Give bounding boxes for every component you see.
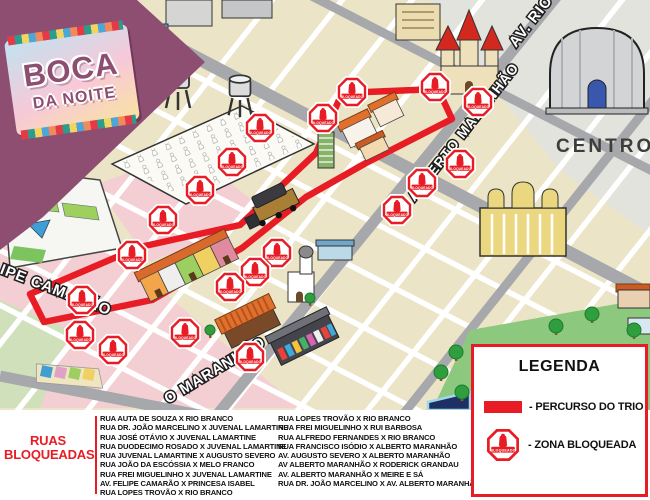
street-item: AV ALBERTO MARANHÃO X RODERICK GRANDAU (278, 460, 480, 469)
svg-text:BLOQUEADO: BLOQUEADO (221, 165, 244, 169)
svg-text:BLOQUEADO: BLOQUEADO (386, 213, 409, 217)
svg-text:BLOQUEADO: BLOQUEADO (102, 353, 125, 357)
svg-text:BLOQUEADO: BLOQUEADO (152, 223, 175, 227)
cathedral (480, 182, 566, 256)
blocked-zone-marker: BLOQUEADO (310, 105, 336, 131)
street-item: RUA JOSÉ OTÁVIO X JUVENAL LAMARTINE (100, 433, 288, 442)
svg-text:BLOQUEADO: BLOQUEADO (71, 303, 94, 307)
svg-text:BLOQUEADO: BLOQUEADO (490, 449, 515, 453)
blocked-zone-marker: BLOQUEADO (150, 207, 176, 233)
svg-text:BLOQUEADO: BLOQUEADO (69, 338, 92, 342)
blocked-zone-marker: BLOQUEADO (67, 322, 93, 348)
blocked-zone-marker: BLOQUEADO (187, 177, 213, 203)
svg-text:BLOQUEADO: BLOQUEADO (449, 167, 472, 171)
blocked-streets-column-1: RUA AUTA DE SOUZA X RIO BRANCO RUA DR. J… (100, 414, 288, 498)
svg-text:BLOQUEADO: BLOQUEADO (219, 290, 242, 294)
svg-text:BLOQUEADO: BLOQUEADO (266, 256, 289, 260)
blocked-zone-marker: BLOQUEADO (422, 74, 448, 100)
svg-text:BLOQUEADO: BLOQUEADO (467, 105, 490, 109)
street-item: AV. FELIPE CAMARÃO X PRINCESA ISABEL (100, 479, 288, 488)
svg-text:BLOQUEADO: BLOQUEADO (312, 121, 335, 125)
svg-text:BLOQUEADO: BLOQUEADO (411, 186, 434, 190)
blocked-zone-marker: BLOQUEADO (217, 274, 243, 300)
svg-text:BLOQUEADO: BLOQUEADO (341, 95, 364, 99)
street-item: RUA FRANCISCO ISÓDIO X ALBERTO MARANHÃO (278, 442, 480, 451)
blocked-zone-marker: BLOQUEADO (219, 149, 245, 175)
tall-green-building (318, 132, 334, 168)
blocked-streets-title: RUAS BLOQUEADAS (4, 434, 92, 462)
svg-text:BLOQUEADO: BLOQUEADO (174, 336, 197, 340)
street-item: RUA LOPES TROVÃO X RIO BRANCO (278, 414, 480, 423)
street-item: RUA ALFREDO FERNANDES X RIO BRANCO (278, 433, 480, 442)
street-item: RUA DR. JOÃO MARCELINO X JUVENAL LAMARTI… (100, 423, 288, 432)
street-item: AV. AUGUSTO SEVERO X ALBERTO MARANHÃO (278, 451, 480, 460)
svg-text:BLOQUEADO: BLOQUEADO (244, 275, 267, 279)
blocked-zone-marker: BLOQUEADO (339, 79, 365, 105)
legend-title: LEGENDA (474, 358, 645, 376)
blocked-zone-marker: BLOQUEADO (447, 151, 473, 177)
district-label-centro: CENTRO (556, 136, 650, 157)
street-item: RUA JUVENAL LAMARTINE X AUGUSTO SEVERO (100, 451, 288, 460)
arena-dome (546, 28, 648, 114)
street-item: RUA JOÃO DA ESCÓSSIA X MELO FRANCO (100, 460, 288, 469)
street-item: RUA DUODECIMO ROSADO X JUVENAL LAMARTINE (100, 442, 288, 451)
blocked-zone-marker: BLOQUEADO (409, 170, 435, 196)
title-divider (95, 416, 97, 494)
street-item: RUA FREI MIGUELINHO X JUVENAL LAMARTINE (100, 470, 288, 479)
blocked-zone-marker: BLOQUEADO (172, 320, 198, 346)
svg-text:BLOQUEADO: BLOQUEADO (249, 131, 272, 135)
blocked-streets-column-2: RUA LOPES TROVÃO X RIO BRANCO RUA FREI M… (278, 414, 480, 488)
street-item: RUA DR. JOÃO MARCELINO X AV. ALBERTO MAR… (278, 479, 480, 488)
route-swatch (484, 401, 522, 413)
street-item: AV. ALBERTO MARANHÃO X MEIRE E SÁ (278, 470, 480, 479)
blocked-zone-icon: BLOQUEADO (485, 427, 521, 463)
legend-route-label: - PERCURSO DO TRIO (529, 401, 643, 413)
blocked-zone-marker: BLOQUEADO (465, 89, 491, 115)
blocked-zone-marker: BLOQUEADO (384, 197, 410, 223)
svg-text:BLOQUEADO: BLOQUEADO (239, 360, 262, 364)
event-logo: BOCA DA NOITE (4, 24, 140, 136)
svg-text:BLOQUEADO: BLOQUEADO (121, 258, 144, 262)
blocked-zone-marker: BLOQUEADO (264, 240, 290, 266)
blocked-zone-marker: BLOQUEADO (247, 115, 273, 141)
street-item: RUA FREI MIGUELINHO X RUI BARBOSA (278, 423, 480, 432)
svg-text:BLOQUEADO: BLOQUEADO (189, 193, 212, 197)
blocked-zone-marker: BLOQUEADO (100, 337, 126, 363)
blocked-zone-marker: BLOQUEADO (119, 242, 145, 268)
street-item: RUA AUTA DE SOUZA X RIO BRANCO (100, 414, 288, 423)
legend-blocked-label: - ZONA BLOQUEADA (528, 439, 636, 451)
street-item: RUA LOPES TROVÃO X RIO BRANCO (100, 488, 288, 497)
blue-striped-building (316, 240, 354, 260)
svg-text:BLOQUEADO: BLOQUEADO (424, 90, 447, 94)
blocked-zone-marker: BLOQUEADO (69, 287, 95, 313)
blocked-zone-marker: BLOQUEADO (237, 344, 263, 370)
legend-box: LEGENDA - PERCURSO DO TRIO BLOQUEADO - Z… (471, 344, 648, 497)
